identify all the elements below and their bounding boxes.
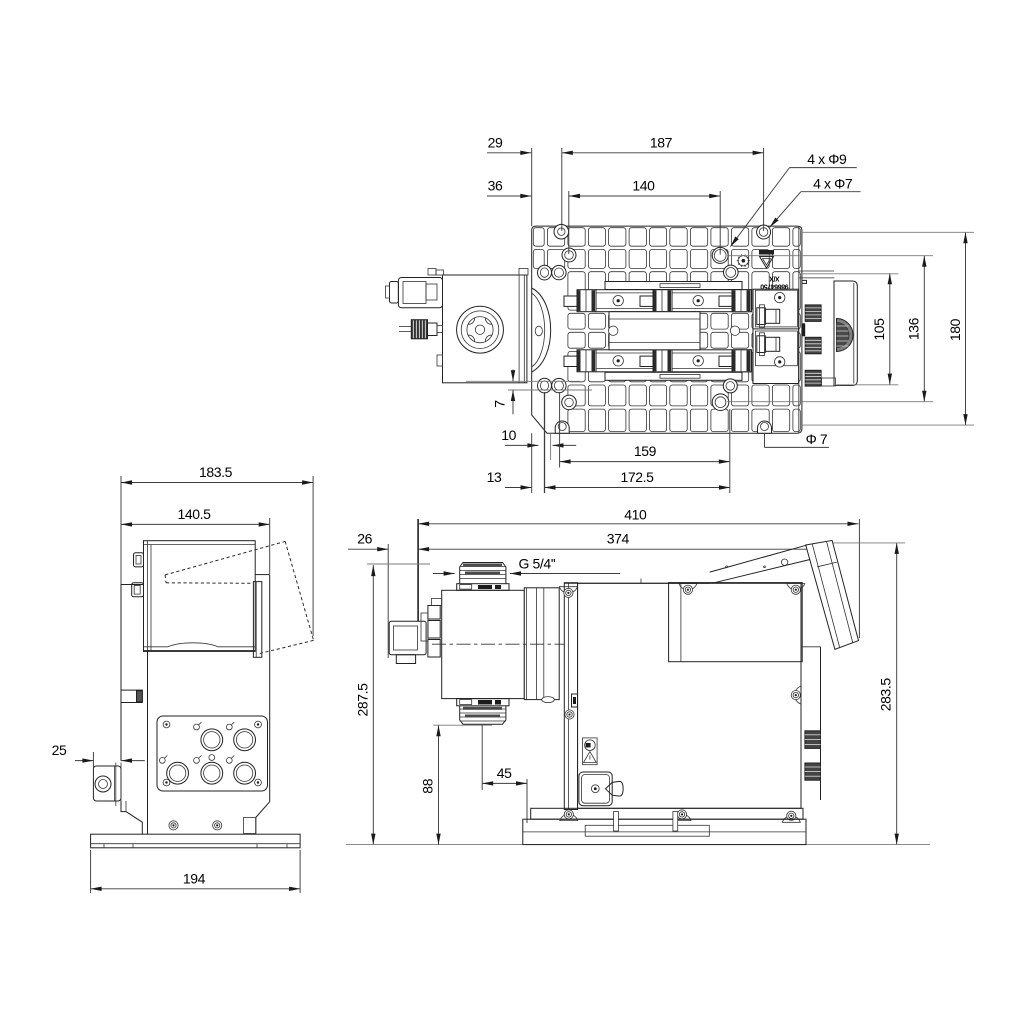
svg-text:13: 13 bbox=[487, 469, 502, 485]
svg-text:X/X: X/X bbox=[769, 275, 780, 282]
svg-text:26: 26 bbox=[357, 531, 372, 547]
svg-text:10: 10 bbox=[501, 427, 516, 443]
svg-text:88: 88 bbox=[420, 778, 436, 793]
svg-text:374: 374 bbox=[607, 531, 630, 547]
svg-text:25: 25 bbox=[52, 742, 67, 758]
svg-text:140.5: 140.5 bbox=[177, 506, 211, 522]
svg-text:159: 159 bbox=[634, 443, 657, 459]
svg-text:29: 29 bbox=[488, 134, 503, 150]
svg-text:283.5: 283.5 bbox=[878, 678, 894, 712]
svg-text:105: 105 bbox=[871, 318, 887, 341]
svg-text:Φ 7: Φ 7 bbox=[806, 431, 828, 447]
svg-text:194: 194 bbox=[183, 870, 206, 886]
svg-text:36: 36 bbox=[488, 178, 503, 194]
svg-text:180: 180 bbox=[947, 318, 963, 341]
svg-text:136: 136 bbox=[906, 317, 922, 340]
svg-text:4 x Φ7: 4 x Φ7 bbox=[813, 175, 853, 191]
svg-text:G 5/4'': G 5/4'' bbox=[519, 556, 556, 572]
svg-text:45: 45 bbox=[497, 765, 512, 781]
svg-text:4 x Φ9: 4 x Φ9 bbox=[807, 151, 847, 167]
svg-text:187: 187 bbox=[650, 134, 673, 150]
svg-text:410: 410 bbox=[624, 506, 647, 522]
svg-text:287.5: 287.5 bbox=[354, 683, 370, 717]
svg-text:172.5: 172.5 bbox=[620, 469, 654, 485]
svg-text:140: 140 bbox=[632, 178, 655, 194]
svg-text:7: 7 bbox=[492, 400, 508, 408]
svg-text:183.5: 183.5 bbox=[199, 464, 233, 480]
svg-text:98664750: 98664750 bbox=[760, 283, 788, 290]
